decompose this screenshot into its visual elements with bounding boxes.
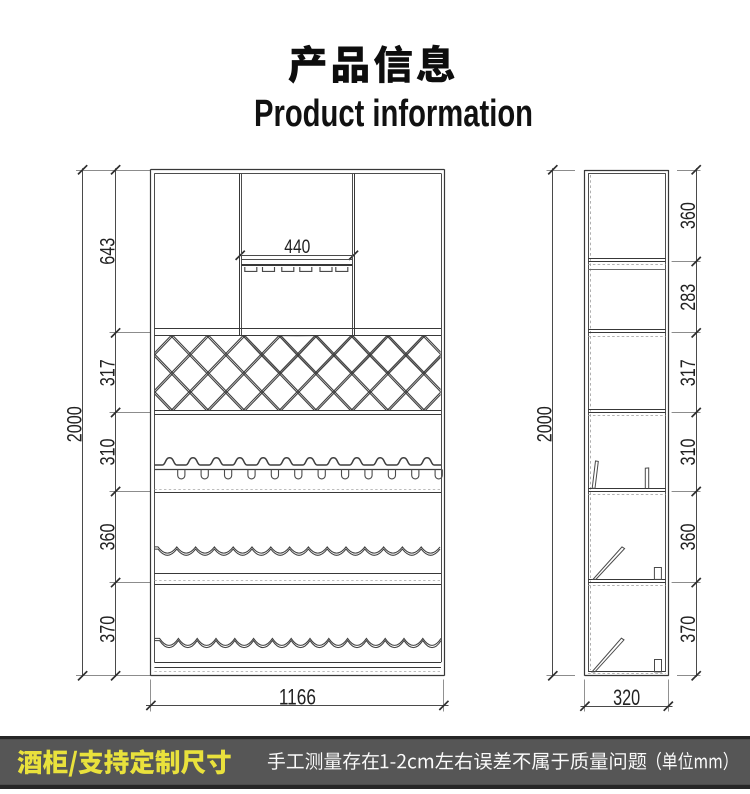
- svg-text:283: 283: [677, 284, 700, 311]
- svg-text:360: 360: [677, 524, 700, 551]
- svg-text:1166: 1166: [279, 684, 316, 709]
- svg-text:2000: 2000: [534, 406, 557, 442]
- svg-text:Product information: Product information: [254, 93, 533, 135]
- svg-text:2000: 2000: [63, 406, 86, 442]
- svg-text:360: 360: [97, 524, 120, 551]
- svg-text:440: 440: [284, 236, 310, 258]
- svg-text:320: 320: [613, 685, 640, 710]
- svg-text:310: 310: [97, 439, 120, 466]
- svg-text:360: 360: [677, 202, 700, 229]
- svg-text:370: 370: [97, 616, 120, 643]
- svg-text:643: 643: [97, 238, 120, 265]
- svg-text:370: 370: [677, 616, 700, 643]
- svg-text:310: 310: [677, 439, 700, 466]
- svg-text:317: 317: [97, 359, 120, 386]
- svg-text:317: 317: [677, 359, 700, 386]
